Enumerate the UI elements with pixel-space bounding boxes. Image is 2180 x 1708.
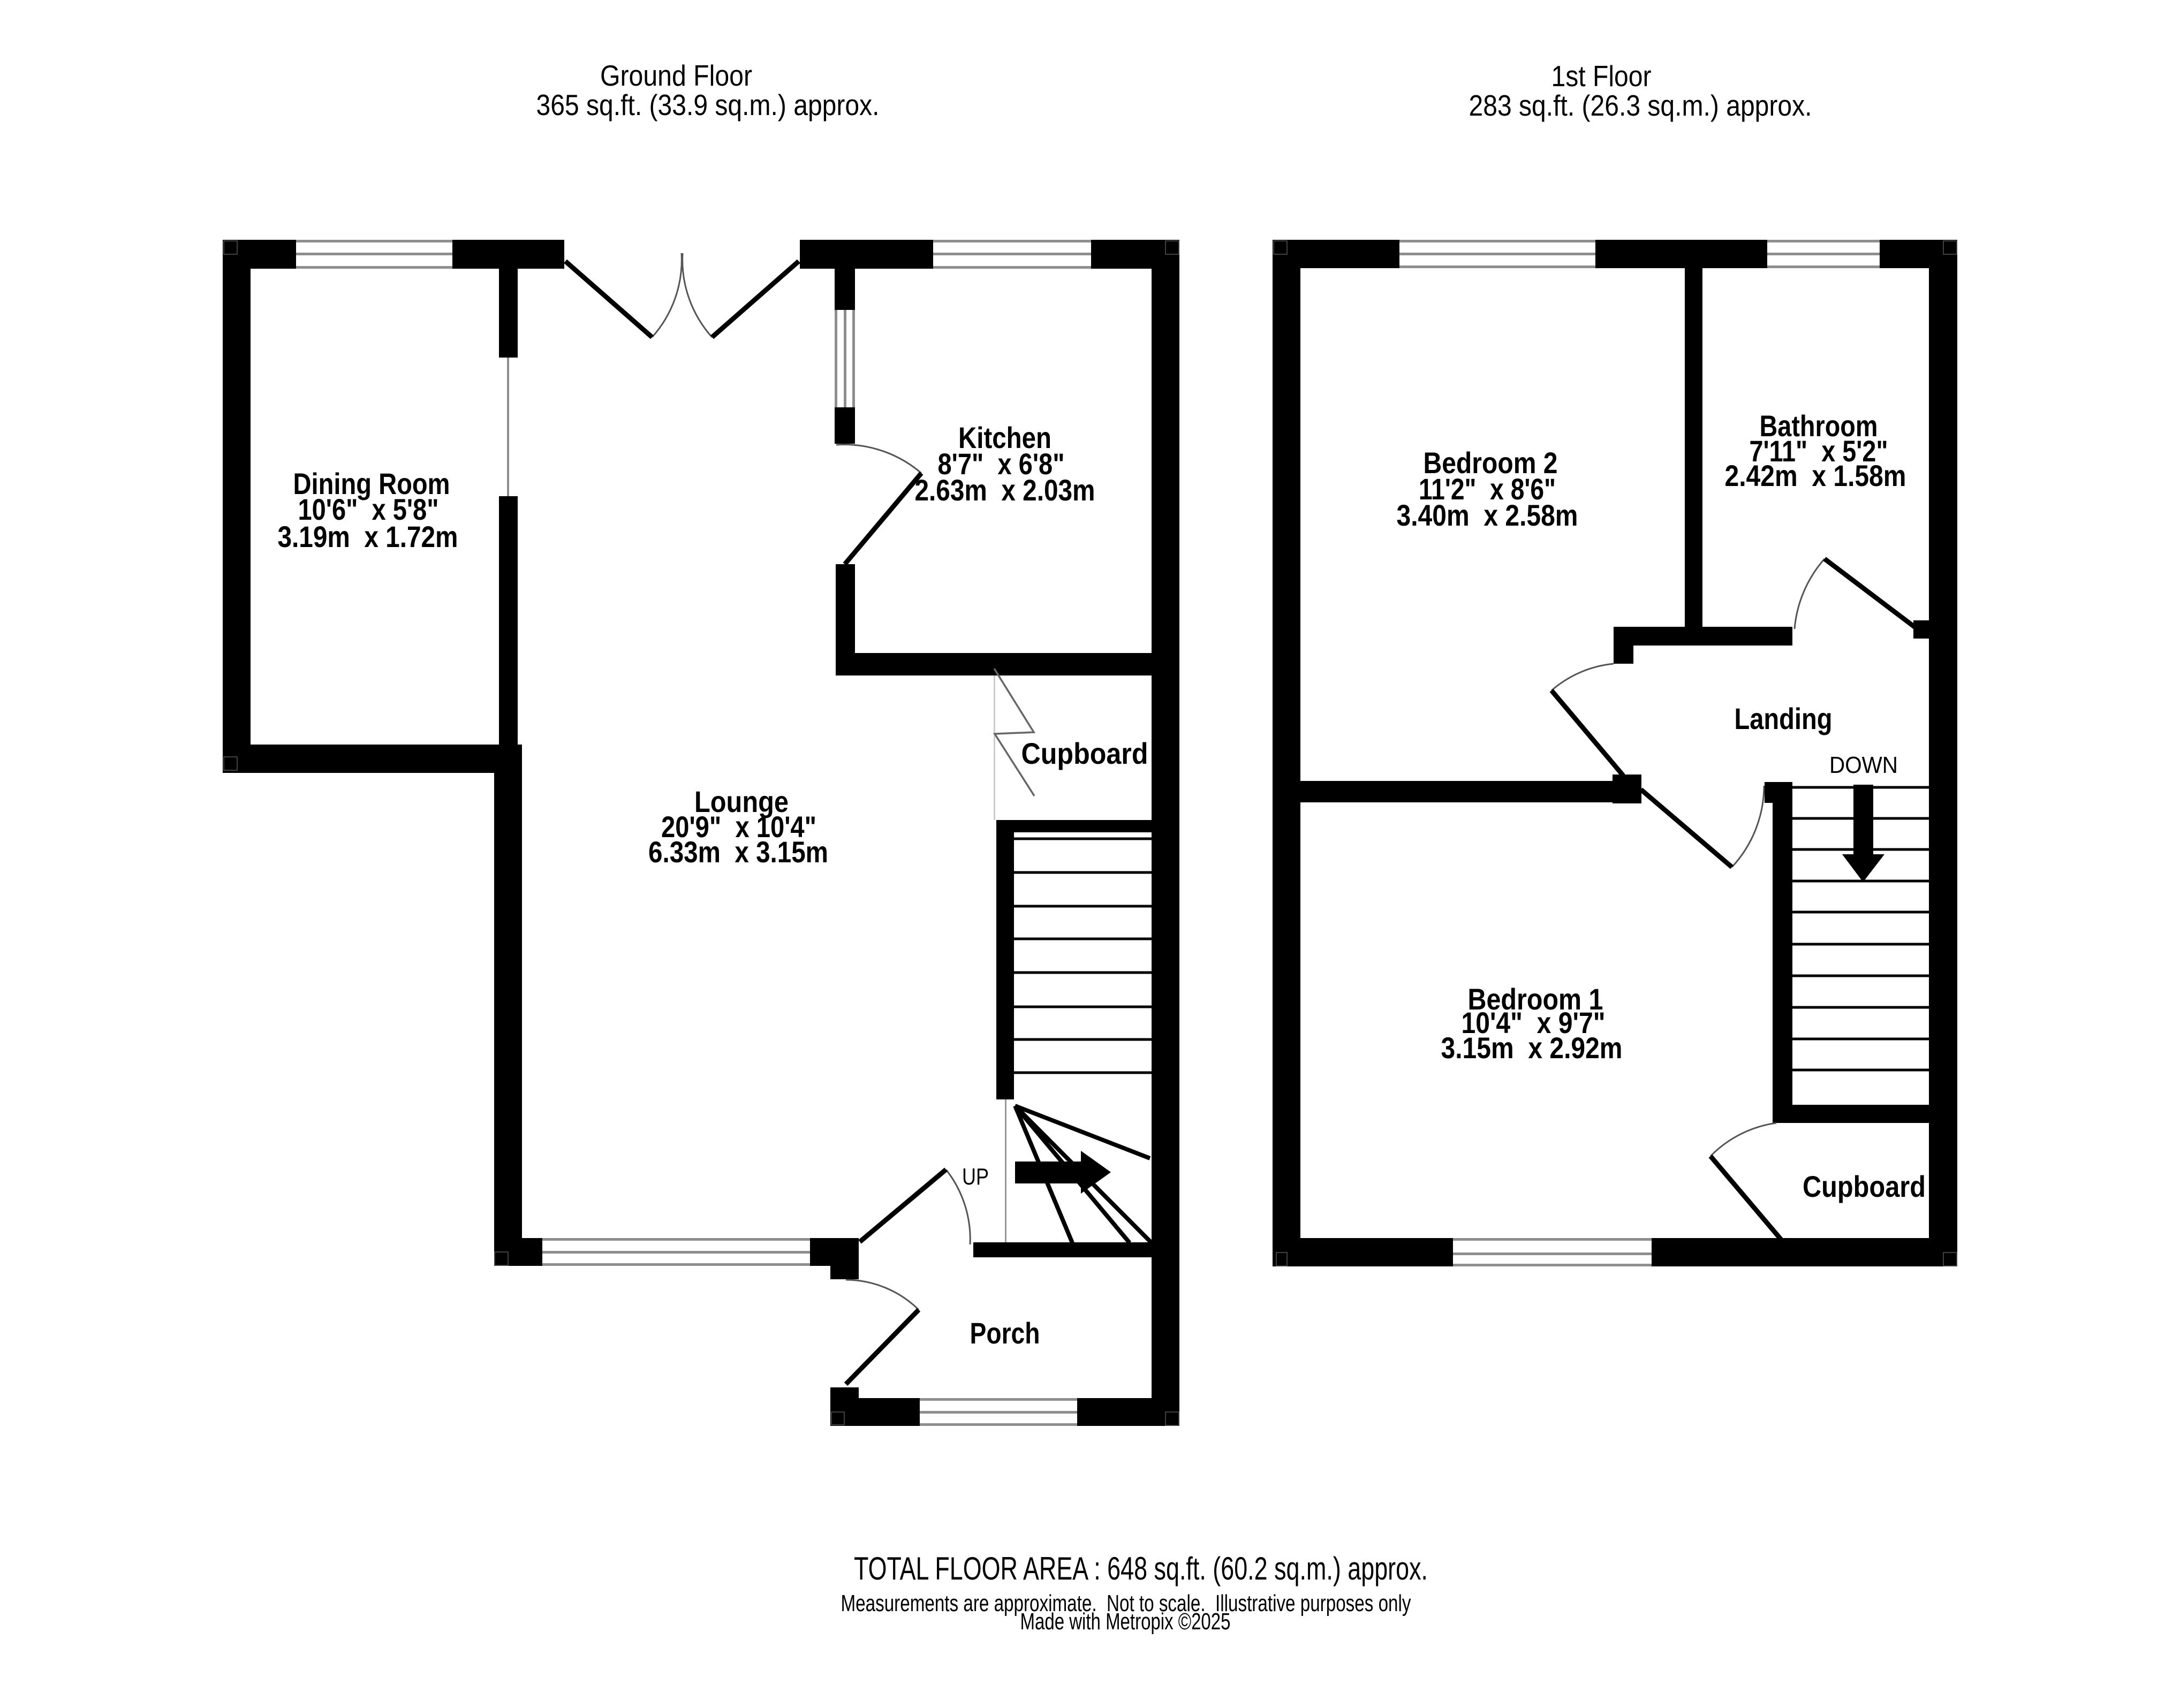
svg-text:3.19m x 1.72m: 3.19m x 1.72m <box>278 520 458 553</box>
svg-text:2.42m x 1.58m: 2.42m x 1.58m <box>1725 459 1906 492</box>
svg-text:Porch: Porch <box>970 1316 1040 1350</box>
svg-text:3.40m x 2.58m: 3.40m x 2.58m <box>1397 498 1578 532</box>
svg-text:6.33m x 3.15m: 6.33m x 3.15m <box>648 835 828 869</box>
svg-text:365 sq.ft. (33.9 sq.m.) approx: 365 sq.ft. (33.9 sq.m.) approx. <box>536 88 880 122</box>
svg-text:Cupboard: Cupboard <box>1021 737 1148 770</box>
svg-text:Made with Metropix ©2025: Made with Metropix ©2025 <box>1020 1608 1231 1635</box>
svg-text:Landing: Landing <box>1735 702 1833 735</box>
svg-text:Cupboard: Cupboard <box>1803 1170 1926 1203</box>
svg-text:1st Floor: 1st Floor <box>1551 59 1652 93</box>
svg-text:UP: UP <box>962 1164 989 1190</box>
svg-text:2.63m x 2.03m: 2.63m x 2.03m <box>915 473 1095 507</box>
svg-text:283 sq.ft. (26.3 sq.m.) approx: 283 sq.ft. (26.3 sq.m.) approx. <box>1469 89 1812 122</box>
svg-text:Ground Floor: Ground Floor <box>600 59 752 92</box>
svg-text:TOTAL FLOOR AREA : 648 sq.ft.: TOTAL FLOOR AREA : 648 sq.ft. (60.2 sq.m… <box>854 1551 1428 1586</box>
svg-text:DOWN: DOWN <box>1829 752 1898 778</box>
svg-text:3.15m x 2.92m: 3.15m x 2.92m <box>1441 1031 1623 1065</box>
